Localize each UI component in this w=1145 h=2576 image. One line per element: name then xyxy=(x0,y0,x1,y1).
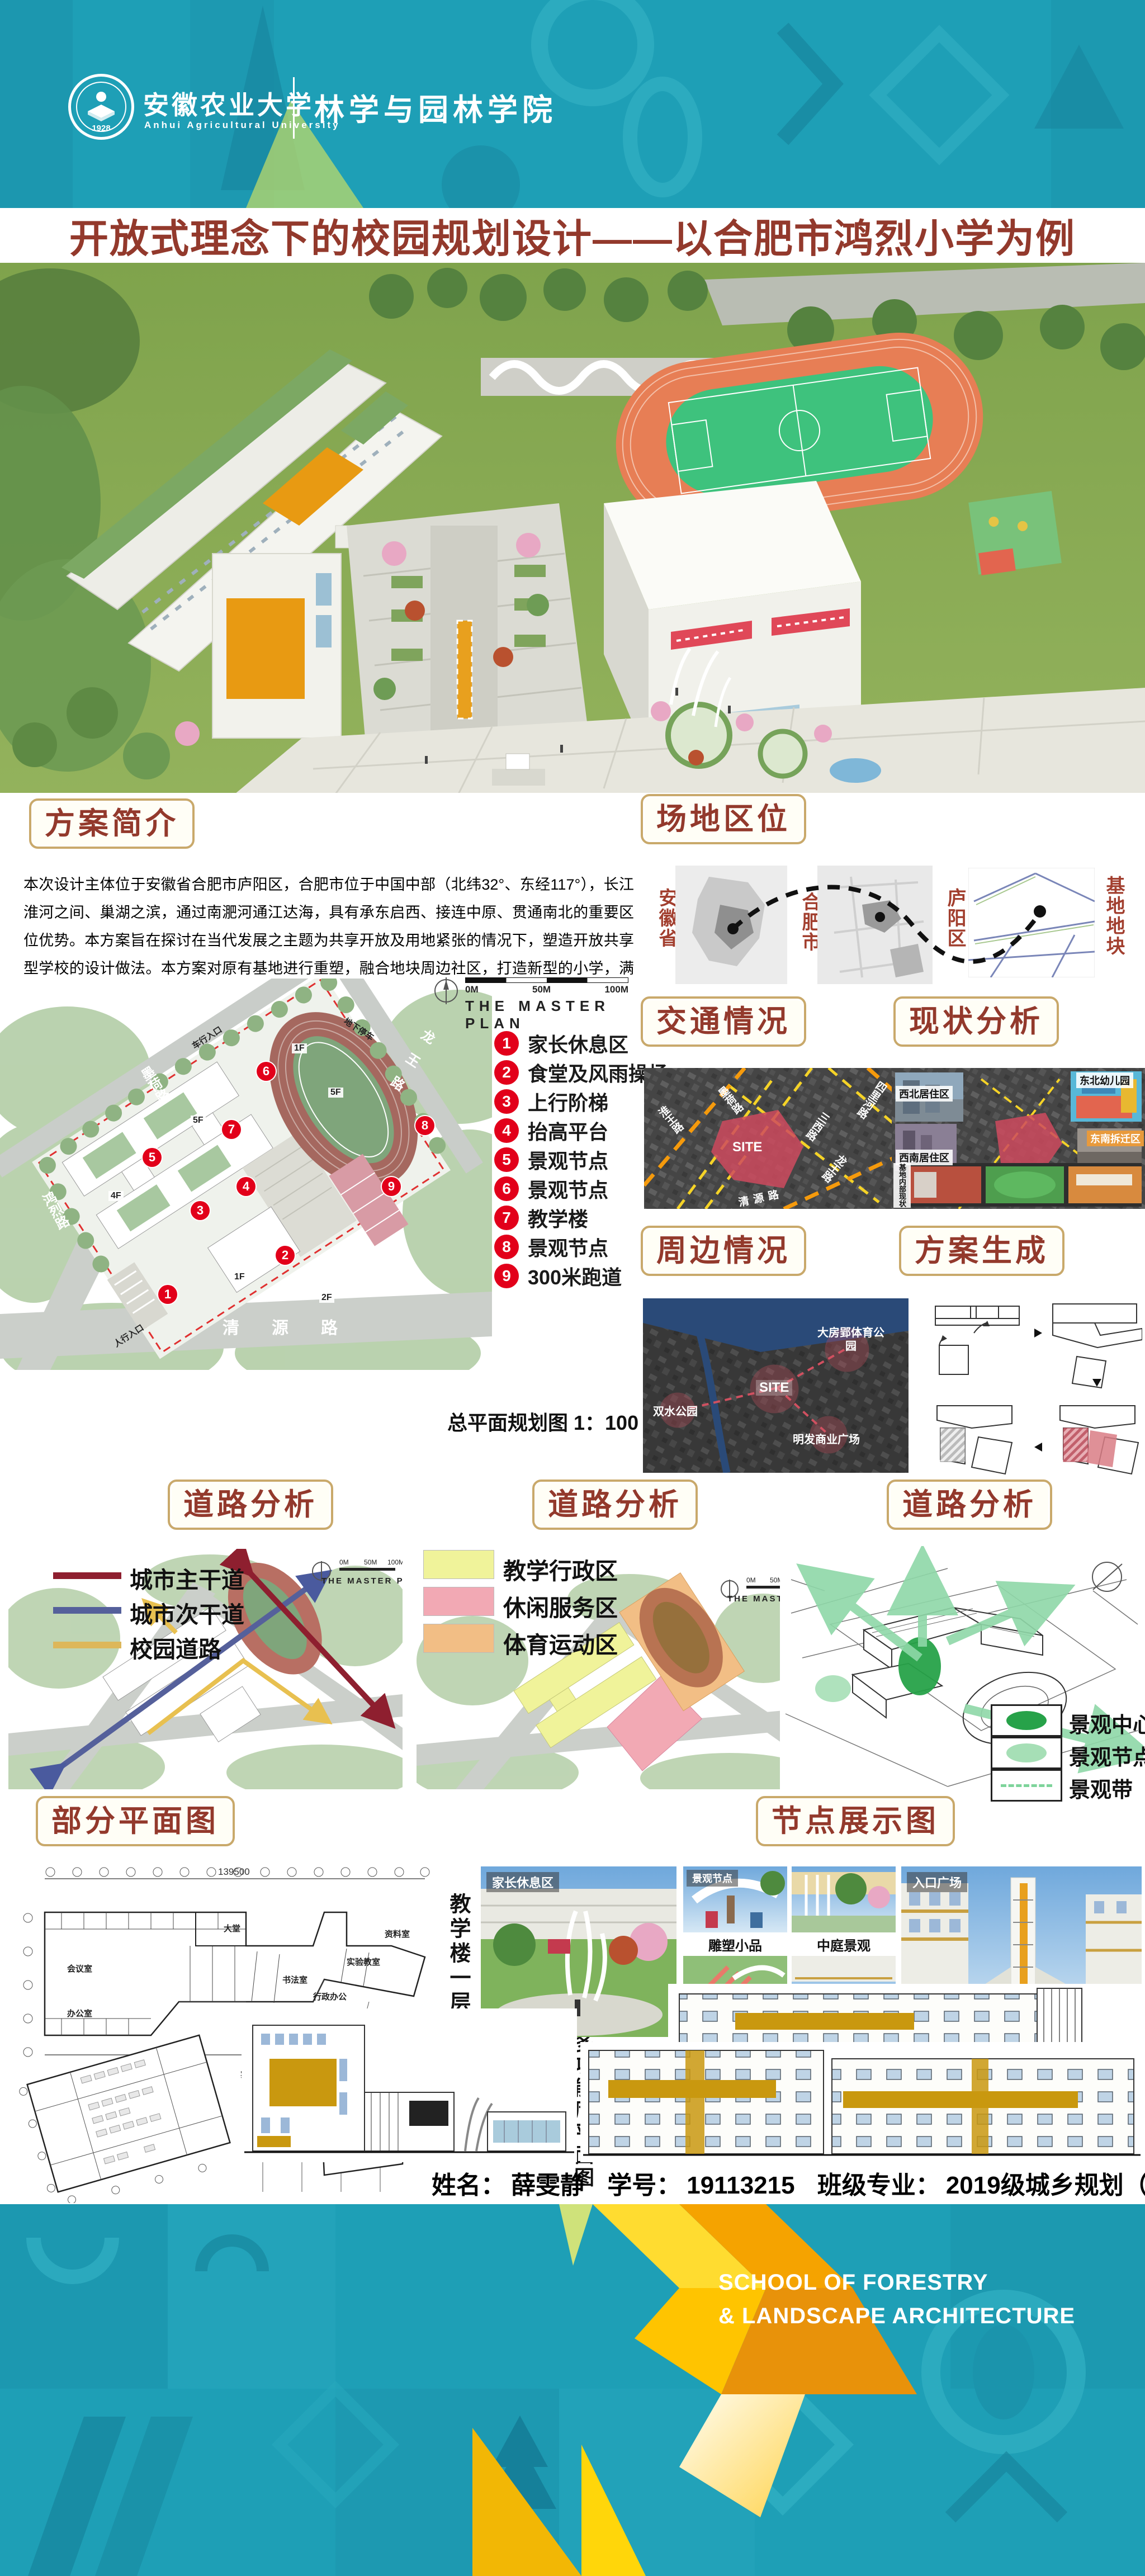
footer-pattern xyxy=(0,2204,1145,2576)
legend-num: 2 xyxy=(494,1060,519,1085)
master-plan-scalebar: 0M 50M 100M THE MASTER PLAN xyxy=(465,977,628,1032)
scale-tick-100: 100M xyxy=(604,984,628,995)
legend-item-1: 1家长休息区 xyxy=(494,1029,628,1058)
room-lab: 实验教室 xyxy=(347,1956,380,1968)
node-caption-1: 雕塑小品 xyxy=(683,1935,787,1954)
plan-marker-1: 1 xyxy=(158,1285,177,1304)
label-district: 庐阳区 xyxy=(941,888,969,948)
status-label-se: 东南拆迁区 xyxy=(1087,1131,1144,1146)
legend-num: 4 xyxy=(494,1118,519,1143)
legend-item-7: 7教学楼 xyxy=(494,1203,588,1232)
ra-c-box-3 xyxy=(991,1769,1062,1802)
room-office: 办公室 xyxy=(67,2007,92,2019)
author-class-label: 班级专业： xyxy=(817,2172,940,2199)
footer-line1: SCHOOL OF FORESTRY xyxy=(718,2270,988,2295)
plan-marker-3: 3 xyxy=(191,1201,210,1220)
author-class: 2019级城乡规划（1）班 xyxy=(946,2172,1145,2199)
ra-a-swatch-1 xyxy=(53,1572,121,1579)
header-divider xyxy=(293,77,295,139)
legend-item-6: 6景观节点 xyxy=(494,1174,608,1203)
poster-title: 开放式理念下的校园规划设计——以合肥市鸿烈小学为例 xyxy=(0,208,1145,263)
poster: 1928 安徽农业大学 Anhui Agricultural Universit… xyxy=(0,0,1145,2576)
floor-label-1f: 1F xyxy=(292,1043,307,1053)
map-plot xyxy=(968,868,1095,977)
section-title-traffic: 交通情况 xyxy=(641,996,806,1047)
college-name: 林学与园林学院 xyxy=(314,85,557,129)
legend-num: 1 xyxy=(494,1031,519,1056)
node-photo-label-landscape: 景观节点 xyxy=(687,1870,738,1887)
section-title-intro: 方案简介 xyxy=(29,798,195,849)
svg-text:0M: 0M xyxy=(339,1558,349,1566)
legend-item-2: 2食堂及风雨操场 xyxy=(494,1058,669,1087)
node-photo-label-entrance: 入口广场 xyxy=(907,1872,967,1892)
legend-num: 8 xyxy=(494,1235,519,1259)
room-admin: 行政办公 xyxy=(313,1991,347,2002)
canteen-floor-plan xyxy=(17,2024,240,2203)
plan-marker-8: 8 xyxy=(415,1116,434,1135)
section-title-road-analysis-c: 道路分析 xyxy=(887,1480,1052,1530)
university-logo: 1928 xyxy=(68,74,134,140)
master-plan-caption: 总平面规划图 1：100 xyxy=(447,1407,638,1436)
ra-a-swatch-3 xyxy=(53,1642,121,1648)
ra-a-label-1: 城市主干道 xyxy=(130,1561,244,1595)
svg-text:50M: 50M xyxy=(364,1558,377,1566)
author-line: 姓名：薛雯静 学号：19113215 班级专业：2019级城乡规划（1）班 xyxy=(432,2165,1145,2201)
room-archive: 资料室 xyxy=(385,1928,410,1940)
legend-num: 5 xyxy=(494,1147,519,1172)
floor-label-4f: 4F xyxy=(108,1191,124,1201)
ra-c-label-3: 景观带 xyxy=(1069,1773,1133,1803)
label-plot: 基地地块 xyxy=(1100,876,1128,956)
master-plan-title: THE MASTER PLAN xyxy=(465,998,628,1032)
plan-marker-6: 6 xyxy=(257,1062,276,1081)
dim-total-top: 139500 xyxy=(218,1866,250,1878)
author-name-label: 姓名： xyxy=(432,2172,505,2199)
ra-b-label-1: 教学行政区 xyxy=(503,1552,618,1586)
legend-item-3: 3上行阶梯 xyxy=(494,1087,608,1116)
status-label-ne: 东北幼儿园 xyxy=(1076,1072,1133,1088)
legend-num: 3 xyxy=(494,1089,519,1114)
legend-item-5: 5景观节点 xyxy=(494,1145,608,1174)
plan-marker-4: 4 xyxy=(236,1177,256,1196)
map-anhui xyxy=(675,866,787,984)
floor-label-2f: 2F xyxy=(319,1293,334,1303)
legend-label: 教学楼 xyxy=(528,1203,588,1232)
surroundings-site-label: SITE xyxy=(756,1380,792,1396)
scale-tick-0: 0M xyxy=(465,984,479,995)
ra-a-swatch-2 xyxy=(53,1607,121,1614)
road-label-qingyuan: 清源路 xyxy=(223,1314,370,1339)
university-name-en: Anhui Agricultural University xyxy=(144,120,340,131)
floor-label-5f: 5F xyxy=(328,1088,343,1098)
ra-c-box-2 xyxy=(991,1737,1062,1769)
ra-c-box-1 xyxy=(991,1704,1062,1737)
legend-label: 家长休息区 xyxy=(528,1029,628,1058)
legend-num: 6 xyxy=(494,1176,519,1201)
ra-b-label-2: 休闲服务区 xyxy=(503,1589,618,1623)
legend-item-8: 8景观节点 xyxy=(494,1232,608,1261)
ra-a-label-3: 校园道路 xyxy=(130,1630,221,1664)
footer-line2: & LANDSCAPE ARCHITECTURE xyxy=(718,2304,1075,2329)
ra-a-label-2: 城市次干道 xyxy=(130,1596,244,1629)
ra-b-swatch-2 xyxy=(423,1587,494,1616)
university-name-cn: 安徽农业大学 xyxy=(143,85,314,122)
svg-text:THE MASTER PLAN: THE MASTER PLAN xyxy=(321,1576,403,1586)
elevation-b xyxy=(242,2008,577,2162)
legend-label: 抬高平台 xyxy=(528,1116,608,1145)
plan-marker-7: 7 xyxy=(222,1120,241,1139)
header-banner: 1928 安徽农业大学 Anhui Agricultural Universit… xyxy=(0,0,1145,208)
generation-diagrams xyxy=(927,1296,1142,1478)
section-title-status: 现状分析 xyxy=(893,996,1059,1047)
campus-aerial-render xyxy=(0,263,1145,793)
plan-marker-9: 9 xyxy=(382,1177,401,1196)
floor-label-5f-2: 5F xyxy=(191,1116,206,1126)
section-title-surroundings: 周边情况 xyxy=(641,1226,806,1276)
author-name: 薛雯静 xyxy=(511,2172,585,2199)
legend-label: 300米跑道 xyxy=(528,1261,622,1291)
legend-label: 景观节点 xyxy=(528,1174,608,1203)
section-title-site-location: 场地区位 xyxy=(641,794,806,844)
elevation-c xyxy=(580,2042,1143,2162)
svg-text:100M: 100M xyxy=(387,1558,403,1566)
legend-label: 上行阶梯 xyxy=(528,1087,608,1116)
legend-label: 景观节点 xyxy=(528,1145,608,1174)
svg-text:0M: 0M xyxy=(746,1576,756,1584)
author-id-label: 学号： xyxy=(607,2172,681,2199)
section-title-generation: 方案生成 xyxy=(899,1226,1064,1276)
ra-b-swatch-3 xyxy=(423,1624,494,1653)
scale-tick-50: 50M xyxy=(532,984,551,995)
traffic-site-label: SITE xyxy=(732,1140,762,1155)
section-title-road-analysis-a: 道路分析 xyxy=(168,1480,333,1530)
plan-marker-5: 5 xyxy=(143,1148,162,1167)
room-calligraphy: 书法室 xyxy=(282,1974,307,1986)
legend-label: 景观节点 xyxy=(528,1232,608,1261)
legend-num: 7 xyxy=(494,1206,519,1230)
ra-b-swatch-1 xyxy=(423,1550,494,1579)
ra-c-label-2: 景观节点 xyxy=(1069,1740,1145,1771)
footer-banner: SCHOOL OF FORESTRY & LANDSCAPE ARCHITECT… xyxy=(0,2204,1145,2576)
author-id: 19113215 xyxy=(687,2172,794,2199)
section-title-nodes: 节点展示图 xyxy=(756,1796,955,1846)
legend-num: 9 xyxy=(494,1264,519,1288)
map-hefei xyxy=(817,866,933,984)
surroundings-label-mall: 明发商业广场 xyxy=(793,1430,860,1447)
legend-item-9: 9300米跑道 xyxy=(494,1261,622,1291)
floor-label-1f-2: 1F xyxy=(232,1272,247,1282)
legend-item-4: 4抬高平台 xyxy=(494,1116,608,1145)
surroundings-label-park1: 大房郢体育公园 xyxy=(817,1326,884,1353)
node-caption-2: 中庭景观 xyxy=(792,1935,896,1954)
ra-b-label-3: 体育运动区 xyxy=(503,1626,618,1660)
master-plan-compass-icon xyxy=(430,974,462,1005)
node-photo-label-parent: 家长休息区 xyxy=(486,1872,559,1892)
section-title-road-analysis-b: 道路分析 xyxy=(532,1480,698,1530)
section-title-partial-plans: 部分平面图 xyxy=(36,1796,235,1846)
room-hall: 大堂 xyxy=(224,1922,240,1934)
surroundings-label-park2: 双水公园 xyxy=(653,1402,698,1419)
room-meeting: 会议室 xyxy=(67,1963,92,1974)
plan-marker-2: 2 xyxy=(276,1246,295,1265)
status-label-nw: 西北居住区 xyxy=(896,1086,953,1102)
logo-year: 1928 xyxy=(71,124,131,133)
status-label-inner: 基地内部现状 xyxy=(893,1163,911,1208)
ra-c-label-1: 景观中心 xyxy=(1069,1708,1145,1738)
